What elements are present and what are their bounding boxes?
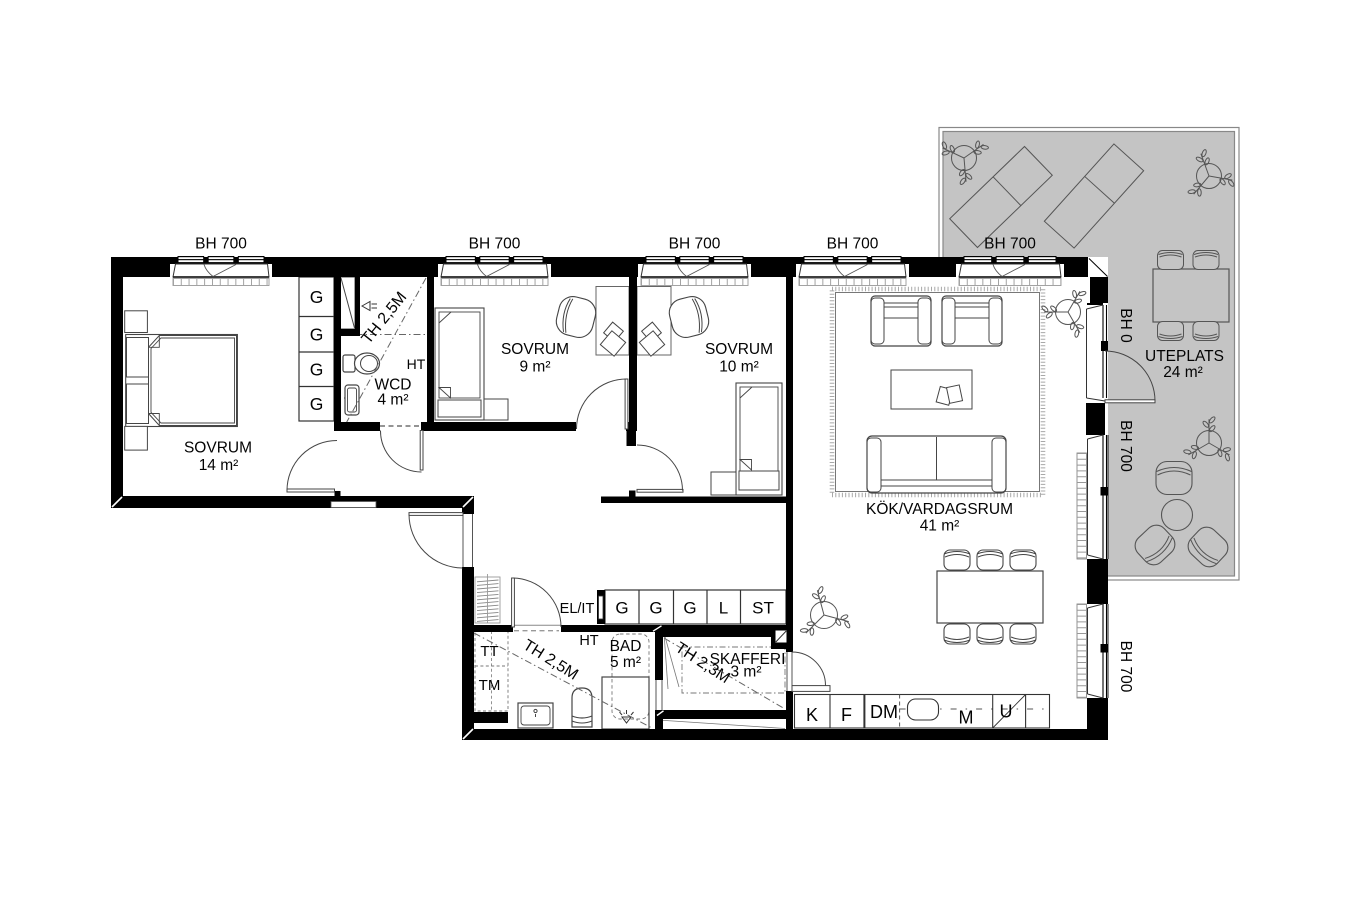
svg-text:3 m²: 3 m²	[731, 664, 762, 681]
svg-text:SOVRUM: SOVRUM	[501, 341, 569, 358]
svg-text:G: G	[683, 599, 696, 618]
svg-text:UTEPLATS: UTEPLATS	[1145, 348, 1224, 365]
svg-text:9 m²: 9 m²	[520, 359, 551, 376]
svg-text:KÖK/VARDAGSRUM: KÖK/VARDAGSRUM	[866, 500, 1013, 518]
svg-text:BH 700: BH 700	[1117, 641, 1134, 693]
svg-text:ST: ST	[752, 599, 774, 618]
svg-text:G: G	[310, 325, 324, 345]
svg-text:G: G	[615, 599, 628, 618]
svg-text:G: G	[310, 287, 324, 307]
svg-text:BAD: BAD	[610, 638, 642, 655]
svg-text:14 m²: 14 m²	[199, 457, 239, 474]
svg-text:EL/IT: EL/IT	[560, 601, 595, 617]
svg-text:K: K	[806, 705, 818, 725]
svg-text:BH 700: BH 700	[469, 236, 521, 253]
svg-text:BH 0: BH 0	[1117, 308, 1134, 343]
svg-text:F: F	[841, 705, 852, 725]
svg-text:G: G	[649, 599, 662, 618]
svg-text:BH 700: BH 700	[984, 236, 1036, 253]
svg-text:SOVRUM: SOVRUM	[705, 341, 773, 358]
svg-text:TM: TM	[479, 677, 501, 694]
svg-text:L: L	[719, 599, 728, 618]
svg-text:BH 700: BH 700	[827, 236, 879, 253]
svg-text:M: M	[959, 708, 974, 728]
svg-text:BH 700: BH 700	[1117, 420, 1134, 472]
svg-text:BH 700: BH 700	[195, 236, 247, 253]
svg-text:U: U	[1000, 702, 1013, 722]
svg-text:BH 700: BH 700	[669, 236, 721, 253]
svg-text:HT: HT	[579, 633, 598, 649]
svg-text:4 m²: 4 m²	[378, 392, 409, 409]
svg-text:24 m²: 24 m²	[1163, 364, 1203, 381]
svg-text:SOVRUM: SOVRUM	[184, 440, 252, 457]
svg-text:41 m²: 41 m²	[920, 518, 960, 535]
svg-text:TT: TT	[480, 643, 498, 660]
svg-text:HT: HT	[407, 356, 426, 372]
svg-text:G: G	[310, 360, 324, 380]
svg-text:G: G	[310, 394, 324, 414]
svg-text:DM: DM	[870, 702, 898, 722]
svg-text:5 m²: 5 m²	[610, 654, 641, 671]
svg-text:10 m²: 10 m²	[719, 359, 759, 376]
